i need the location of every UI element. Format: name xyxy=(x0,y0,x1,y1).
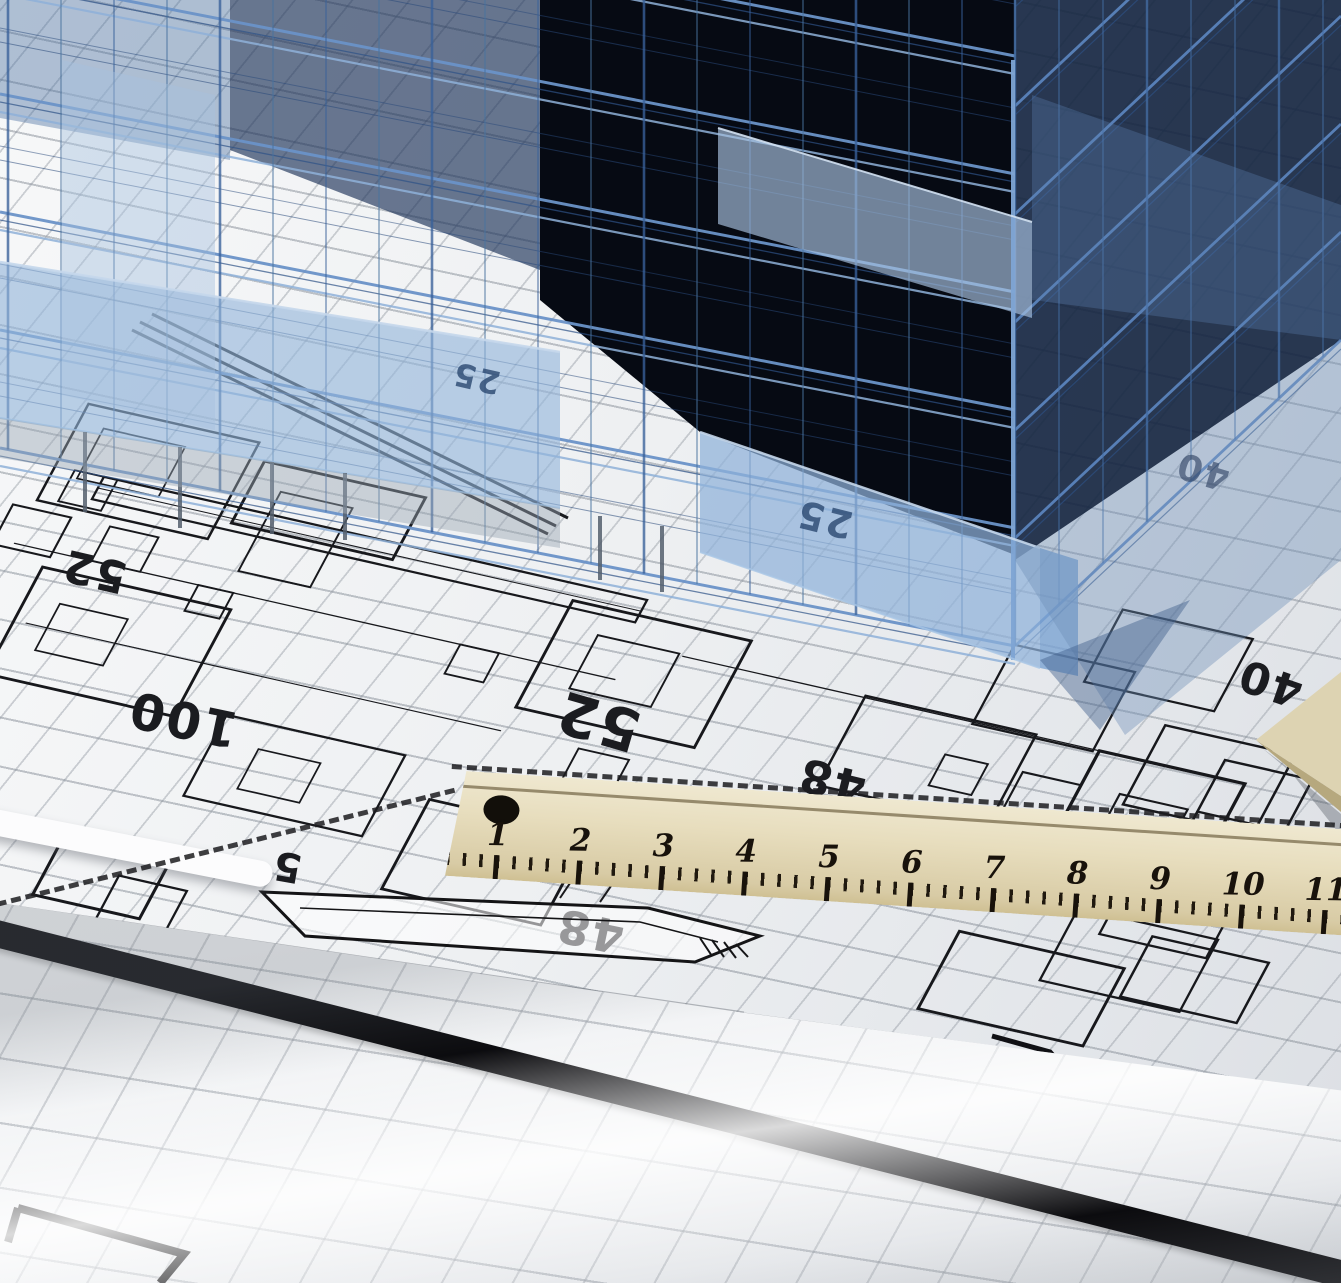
ruler-number: 7 xyxy=(984,850,1006,886)
ruler-number: 5 xyxy=(818,839,840,875)
ruler-number: 2 xyxy=(570,823,592,859)
ruler-number: 9 xyxy=(1149,861,1171,897)
ruler-number: 6 xyxy=(901,845,923,881)
ruler-number: 10 xyxy=(1221,866,1265,903)
ruler-number: 3 xyxy=(652,828,674,864)
ruler-number: 1 xyxy=(487,817,509,853)
ruler-number: 4 xyxy=(735,834,757,870)
set-square-tip xyxy=(0,0,1341,900)
ruler-number: 11 xyxy=(1304,872,1341,909)
blueprint-scene: 52100524840252540548 xyxy=(0,0,1341,1283)
ruler-number: 8 xyxy=(1066,856,1088,892)
